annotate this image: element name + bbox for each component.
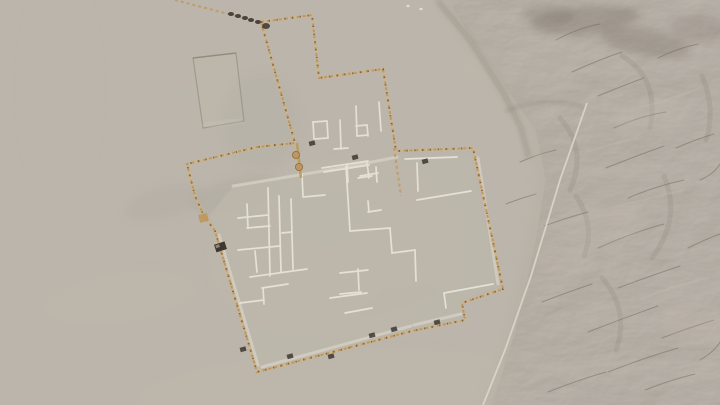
film-grain [0,0,720,405]
aerial-photo [0,0,720,405]
aerial-photo-canvas [0,0,720,405]
